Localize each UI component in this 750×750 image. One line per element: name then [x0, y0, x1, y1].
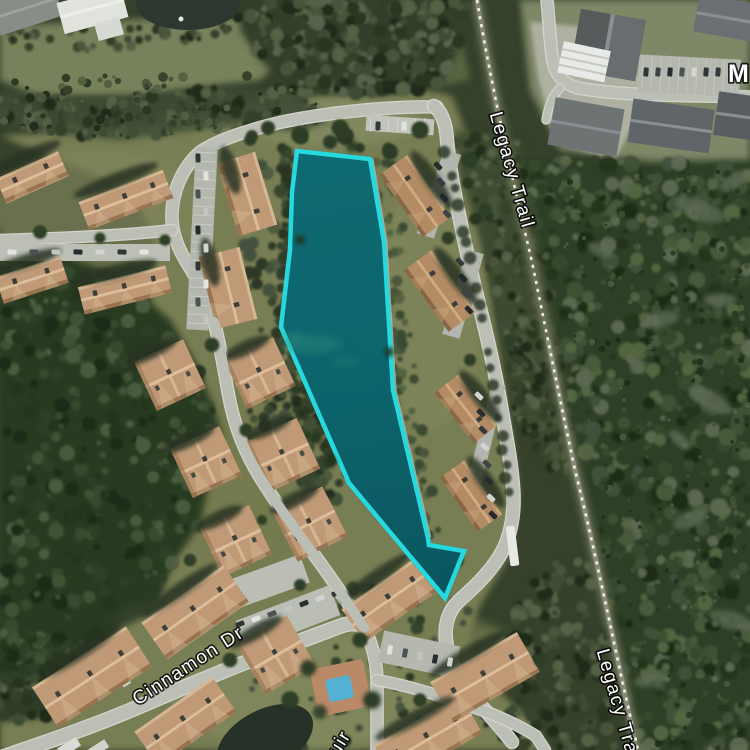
svg-text:M: M [728, 60, 749, 88]
